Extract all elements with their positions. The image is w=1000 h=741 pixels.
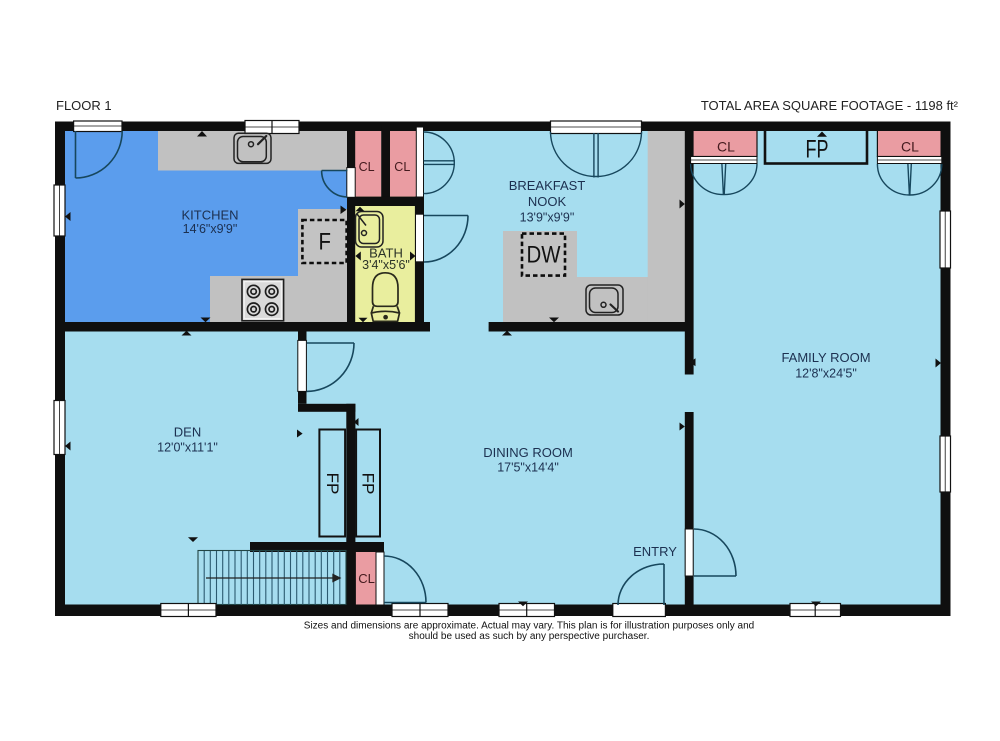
svg-text:FP: FP xyxy=(359,473,378,495)
svg-text:FAMILY ROOM: FAMILY ROOM xyxy=(781,350,870,365)
svg-text:CL: CL xyxy=(359,160,375,174)
svg-text:KITCHEN: KITCHEN xyxy=(181,208,238,223)
svg-text:DEN: DEN xyxy=(174,425,201,440)
svg-text:DW: DW xyxy=(527,241,561,268)
svg-text:FP: FP xyxy=(323,473,342,495)
svg-text:CL: CL xyxy=(717,139,735,155)
svg-text:BREAKFAST: BREAKFAST xyxy=(509,178,586,193)
svg-text:14'6"x9'9": 14'6"x9'9" xyxy=(183,222,238,236)
svg-text:should be used as such by any: should be used as such by any perspectiv… xyxy=(409,631,650,642)
svg-text:CL: CL xyxy=(394,160,410,174)
svg-text:17'5"x14'4": 17'5"x14'4" xyxy=(497,460,559,474)
svg-text:12'0"x11'1": 12'0"x11'1" xyxy=(157,441,218,455)
svg-text:FP: FP xyxy=(806,134,829,163)
svg-text:CL: CL xyxy=(358,571,375,586)
svg-text:TOTAL AREA SQUARE FOOTAGE - 11: TOTAL AREA SQUARE FOOTAGE - 1198 ft² xyxy=(701,98,959,113)
svg-text:FLOOR 1: FLOOR 1 xyxy=(56,98,112,113)
svg-text:ENTRY: ENTRY xyxy=(633,544,677,559)
svg-text:CL: CL xyxy=(901,139,919,155)
svg-text:Sizes and dimensions are appro: Sizes and dimensions are approximate. Ac… xyxy=(304,621,754,632)
svg-text:13'9"x9'9": 13'9"x9'9" xyxy=(520,210,575,224)
svg-text:DINING ROOM: DINING ROOM xyxy=(483,445,573,460)
svg-text:NOOK: NOOK xyxy=(528,194,567,209)
svg-text:3'4"x5'6": 3'4"x5'6" xyxy=(362,258,410,272)
svg-text:12'8"x24'5": 12'8"x24'5" xyxy=(795,367,857,381)
svg-text:F: F xyxy=(318,228,330,255)
